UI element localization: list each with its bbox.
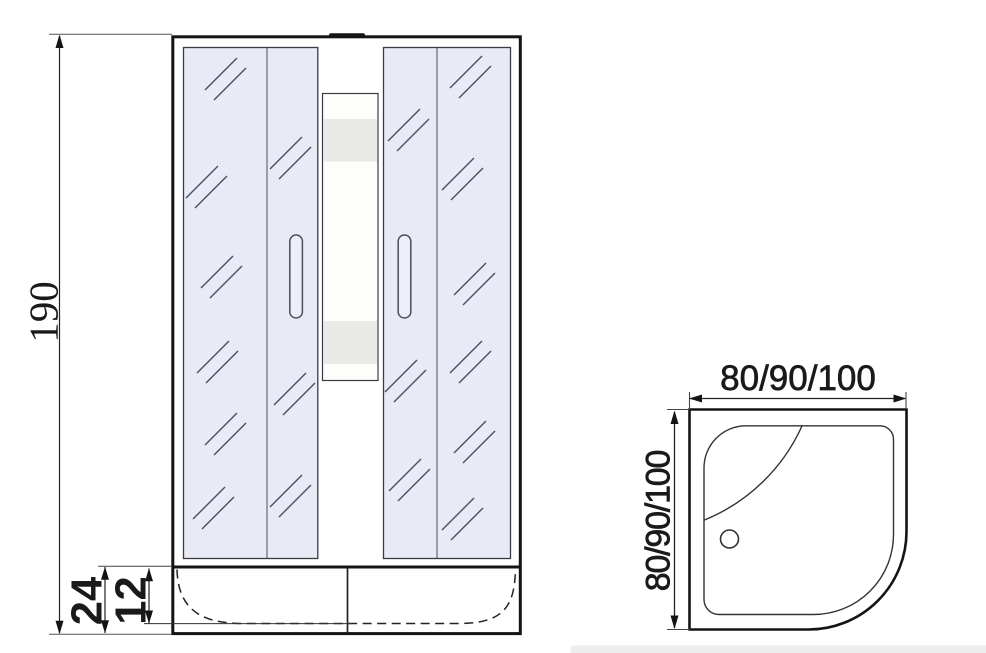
svg-text:24: 24 <box>64 577 112 625</box>
svg-text:80/90/100: 80/90/100 <box>720 359 876 398</box>
svg-text:80/90/100: 80/90/100 <box>640 450 678 591</box>
svg-text:12: 12 <box>108 576 156 624</box>
svg-text:190: 190 <box>21 281 67 343</box>
